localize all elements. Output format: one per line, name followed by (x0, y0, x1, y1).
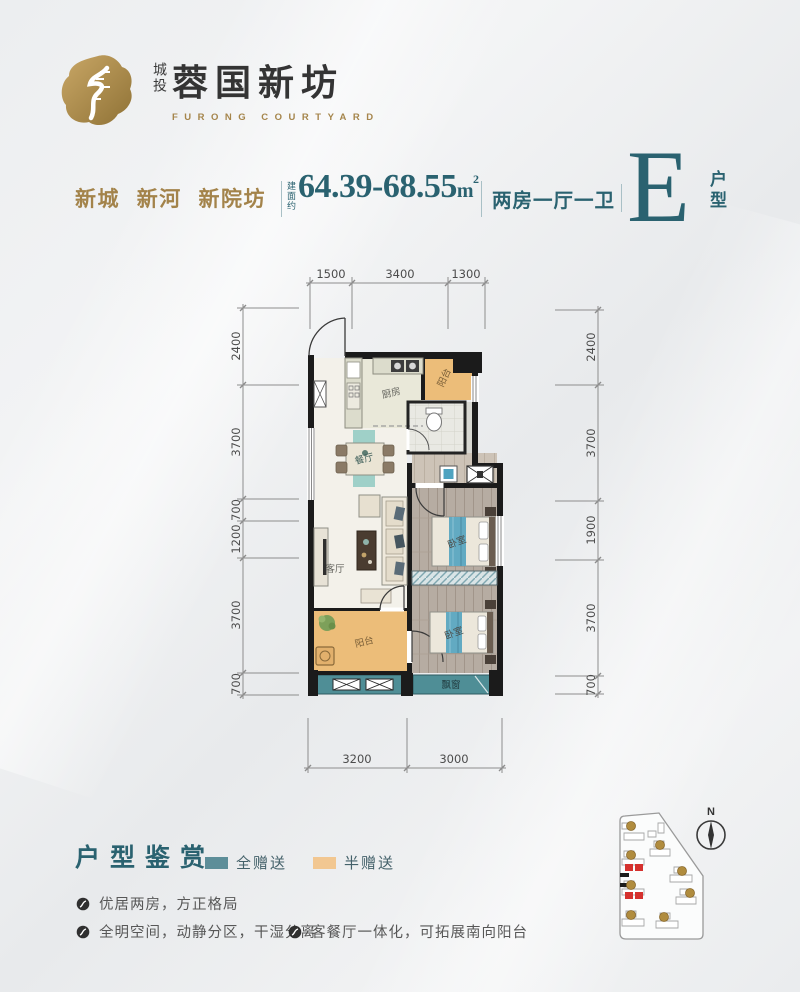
gift-legend: 全赠送 半赠送 (205, 852, 421, 873)
feature-item: 客餐厅一体化，可拓展南向阳台 (288, 921, 528, 942)
dim-top: 1300 (451, 267, 480, 281)
dim-top: 3400 (385, 267, 414, 281)
dim-left: 700 (229, 673, 243, 695)
brand-name-en: FURONG COURTYARD (172, 112, 380, 123)
entrance-door (309, 318, 345, 356)
legend-label-half: 半赠送 (344, 852, 395, 873)
dim-top: 1500 (316, 267, 345, 281)
dim-right: 3700 (584, 428, 598, 457)
brand-logo: 城投 蓉国新坊 FURONG COURTYARD (60, 52, 380, 132)
dim-right: 700 (584, 674, 598, 696)
unit-type-letter: E (627, 136, 690, 239)
dim-left: 700 (229, 499, 243, 521)
feature-bullet-icon (76, 897, 90, 911)
area-value: 64.39-68.55m2 (298, 168, 479, 206)
feature-item: 全明空间，动静分区，干湿分离 (76, 921, 316, 942)
area-prefix: 建面约 (286, 181, 296, 215)
area-unit: m (457, 180, 473, 202)
dim-right: 3700 (584, 603, 598, 632)
room-label-living: 客厅 (325, 563, 345, 575)
header-divider (481, 181, 482, 217)
brand-small-text: 城投 (150, 62, 166, 94)
feature-bullet-icon (76, 925, 90, 939)
feature-text: 客餐厅一体化，可拓展南向阳台 (311, 921, 528, 942)
wardrobe (412, 571, 497, 585)
header-divider (281, 181, 282, 217)
logo-emblem-icon (60, 52, 136, 132)
feature-item: 优居两房，方正格局 (76, 893, 239, 914)
dim-left: 2400 (229, 331, 243, 360)
feature-text: 全明空间，动静分区，干湿分离 (99, 921, 316, 942)
floor-plan: 1500 3400 1300 2400 3700 700 1200 3700 7… (195, 263, 665, 778)
dim-right: 1900 (584, 515, 598, 544)
gallery-title: 户型鉴赏 (75, 838, 215, 874)
layout-text: 两房一厅一卫 (492, 184, 615, 213)
dim-bottom: 3000 (439, 752, 468, 766)
brand-name: 蓉国新坊 (172, 54, 380, 106)
slogan-text: 新城 新河 新院坊 (75, 183, 266, 213)
legend-swatch-half (313, 857, 336, 869)
dim-left: 3700 (229, 600, 243, 629)
room-label-bay-window: 飘窗 (441, 679, 460, 691)
poster-page: 城投 蓉国新坊 FURONG COURTYARD 新城 新河 新院坊 建面约 6… (0, 0, 800, 992)
header-divider (621, 184, 622, 212)
dim-right: 2400 (584, 332, 598, 361)
feature-text: 优居两房，方正格局 (99, 893, 239, 914)
dim-left: 3700 (229, 427, 243, 456)
feature-bullet-icon (288, 925, 302, 939)
unit-type-label: 户型 (704, 170, 729, 212)
compass-icon: N (697, 806, 725, 849)
dim-left: 1200 (229, 524, 243, 553)
area-superscript: 2 (473, 172, 479, 186)
legend-label-full: 全赠送 (236, 852, 287, 873)
legend-swatch-full (205, 857, 228, 869)
site-plan: N (598, 793, 768, 963)
compass-north-label: N (707, 806, 715, 818)
dim-bottom: 3200 (342, 752, 371, 766)
